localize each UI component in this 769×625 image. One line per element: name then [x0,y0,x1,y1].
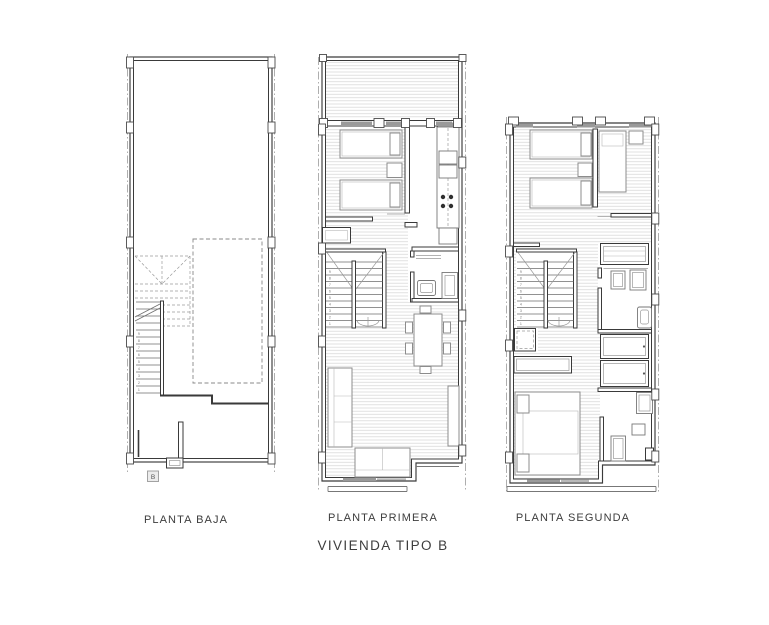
window-sill [377,478,406,480]
chair [420,306,431,313]
appliance [439,228,457,244]
stair-wall [574,252,578,328]
chair [406,343,413,354]
stair-step-number: 4 [138,367,140,371]
nightstand [578,163,592,177]
stair-step-number: 3 [520,309,522,313]
stair-divider [544,261,548,328]
chair [420,367,431,374]
stair-step-number: 3 [329,309,331,313]
stair-step-number: 6 [138,353,140,357]
partition-wall [326,217,373,221]
stair-wall [161,301,164,395]
entry-porch [167,458,184,468]
exterior-wall-inner [134,61,269,459]
stair-divider [352,261,356,328]
appliance [439,165,457,178]
pillow [390,183,400,207]
bed [599,131,626,192]
projection-outline [193,239,262,383]
bathroom-wall [598,268,602,278]
bathroom-wall [411,251,415,257]
stair-step-number: 1 [329,322,331,326]
stair-step-number: 1 [138,388,140,392]
stair-step-number: 7 [138,346,140,350]
stair-wall [383,252,387,328]
stair-step-number: 5 [520,296,522,300]
partition-wall [593,129,598,207]
plan-planta-segunda: 1 2 3 4 5 6 7 8 9 [506,117,659,492]
interior-wall [160,396,268,404]
stair-step-number: 2 [329,316,331,320]
bathroom-wall [412,299,459,303]
door-handle [643,345,645,347]
plan-label-planta-primera: PLANTA PRIMERA [328,512,438,524]
closet [601,335,649,359]
stair-step-number: 4 [329,303,331,307]
pillow [581,181,591,205]
nightstand [629,131,643,144]
stair-step-number: 4 [520,303,522,307]
stair-step-number: 7 [520,283,522,287]
entry-wall [179,422,184,460]
floor-plan-drawing: 1 2 3 4 5 6 7 8 9 B [0,0,769,625]
drawing-title: VIVIENDA TIPO B [317,538,448,553]
pillow [390,133,400,155]
stair-step-number: 2 [138,381,140,385]
wall-return [405,223,417,228]
stair-step-number: 9 [520,270,522,274]
chair [406,322,413,333]
window [341,122,372,126]
bathroom-wall [411,272,415,302]
terrace-decking [326,62,458,119]
plan-label-planta-segunda: PLANTA SEGUNDA [516,512,630,524]
appliance [439,151,457,164]
balcony-slab [507,487,656,492]
window [386,122,401,126]
sofa [328,368,352,447]
stair-step-number: 5 [138,360,140,364]
balcony-notch [598,459,653,481]
staircase: 1 2 3 4 5 6 7 8 9 [135,256,190,395]
exterior-wall-outer [130,57,272,462]
pillow [517,395,529,413]
stair-step-number: 6 [520,290,522,294]
stair-step-number: 9 [329,270,331,274]
stair-step-number: 8 [520,277,522,281]
tv-unit [448,386,459,446]
pillow [517,454,529,472]
sink [442,273,458,299]
pillow [581,133,591,156]
door-handle [643,372,645,374]
plan-planta-baja: 1 2 3 4 5 6 7 8 9 B [127,54,276,482]
stair-step-number: 3 [138,374,140,378]
window-sill [561,480,589,482]
stair-wall [326,249,386,252]
bathroom-wall [598,330,652,334]
bathroom-wall [412,247,459,251]
closet [323,228,351,244]
section-marker: B [151,474,155,481]
nightstand [387,163,402,178]
stair-step-number: 7 [329,283,331,287]
kitchen [437,123,459,245]
stair-wall [517,249,577,252]
boundary-line [128,54,275,474]
window-sill [527,479,560,482]
balcony [507,479,656,491]
bathroom-wall [598,288,602,333]
stair-step-number: 2 [520,316,522,320]
partition-wall [405,127,410,213]
stair-step-number: 8 [329,277,331,281]
partition-wall [611,214,652,218]
dining-table [414,314,442,366]
closet [515,329,536,352]
plan-planta-primera: 1 2 3 4 5 6 7 8 9 [319,55,467,492]
plan-label-planta-baja: PLANTA BAJA [144,514,228,526]
chair [444,322,451,333]
architectural-sheet: 1 2 3 4 5 6 7 8 9 B [0,0,769,625]
chair [444,343,451,354]
cabinet [632,424,645,435]
stair-step-number: 5 [329,296,331,300]
bathroom-wall [598,388,652,392]
closet [601,361,649,387]
bedroom [515,392,580,475]
stair-step-number: 8 [138,339,140,343]
balcony-notch [411,458,459,479]
stair-step-number: 1 [520,322,522,326]
stair-step-number: 9 [138,332,140,336]
stair-step-number: 6 [329,290,331,294]
partition-wall [514,243,540,247]
stair-break-line [135,304,160,321]
window-sill [343,478,376,481]
bathroom-wall [600,417,604,461]
